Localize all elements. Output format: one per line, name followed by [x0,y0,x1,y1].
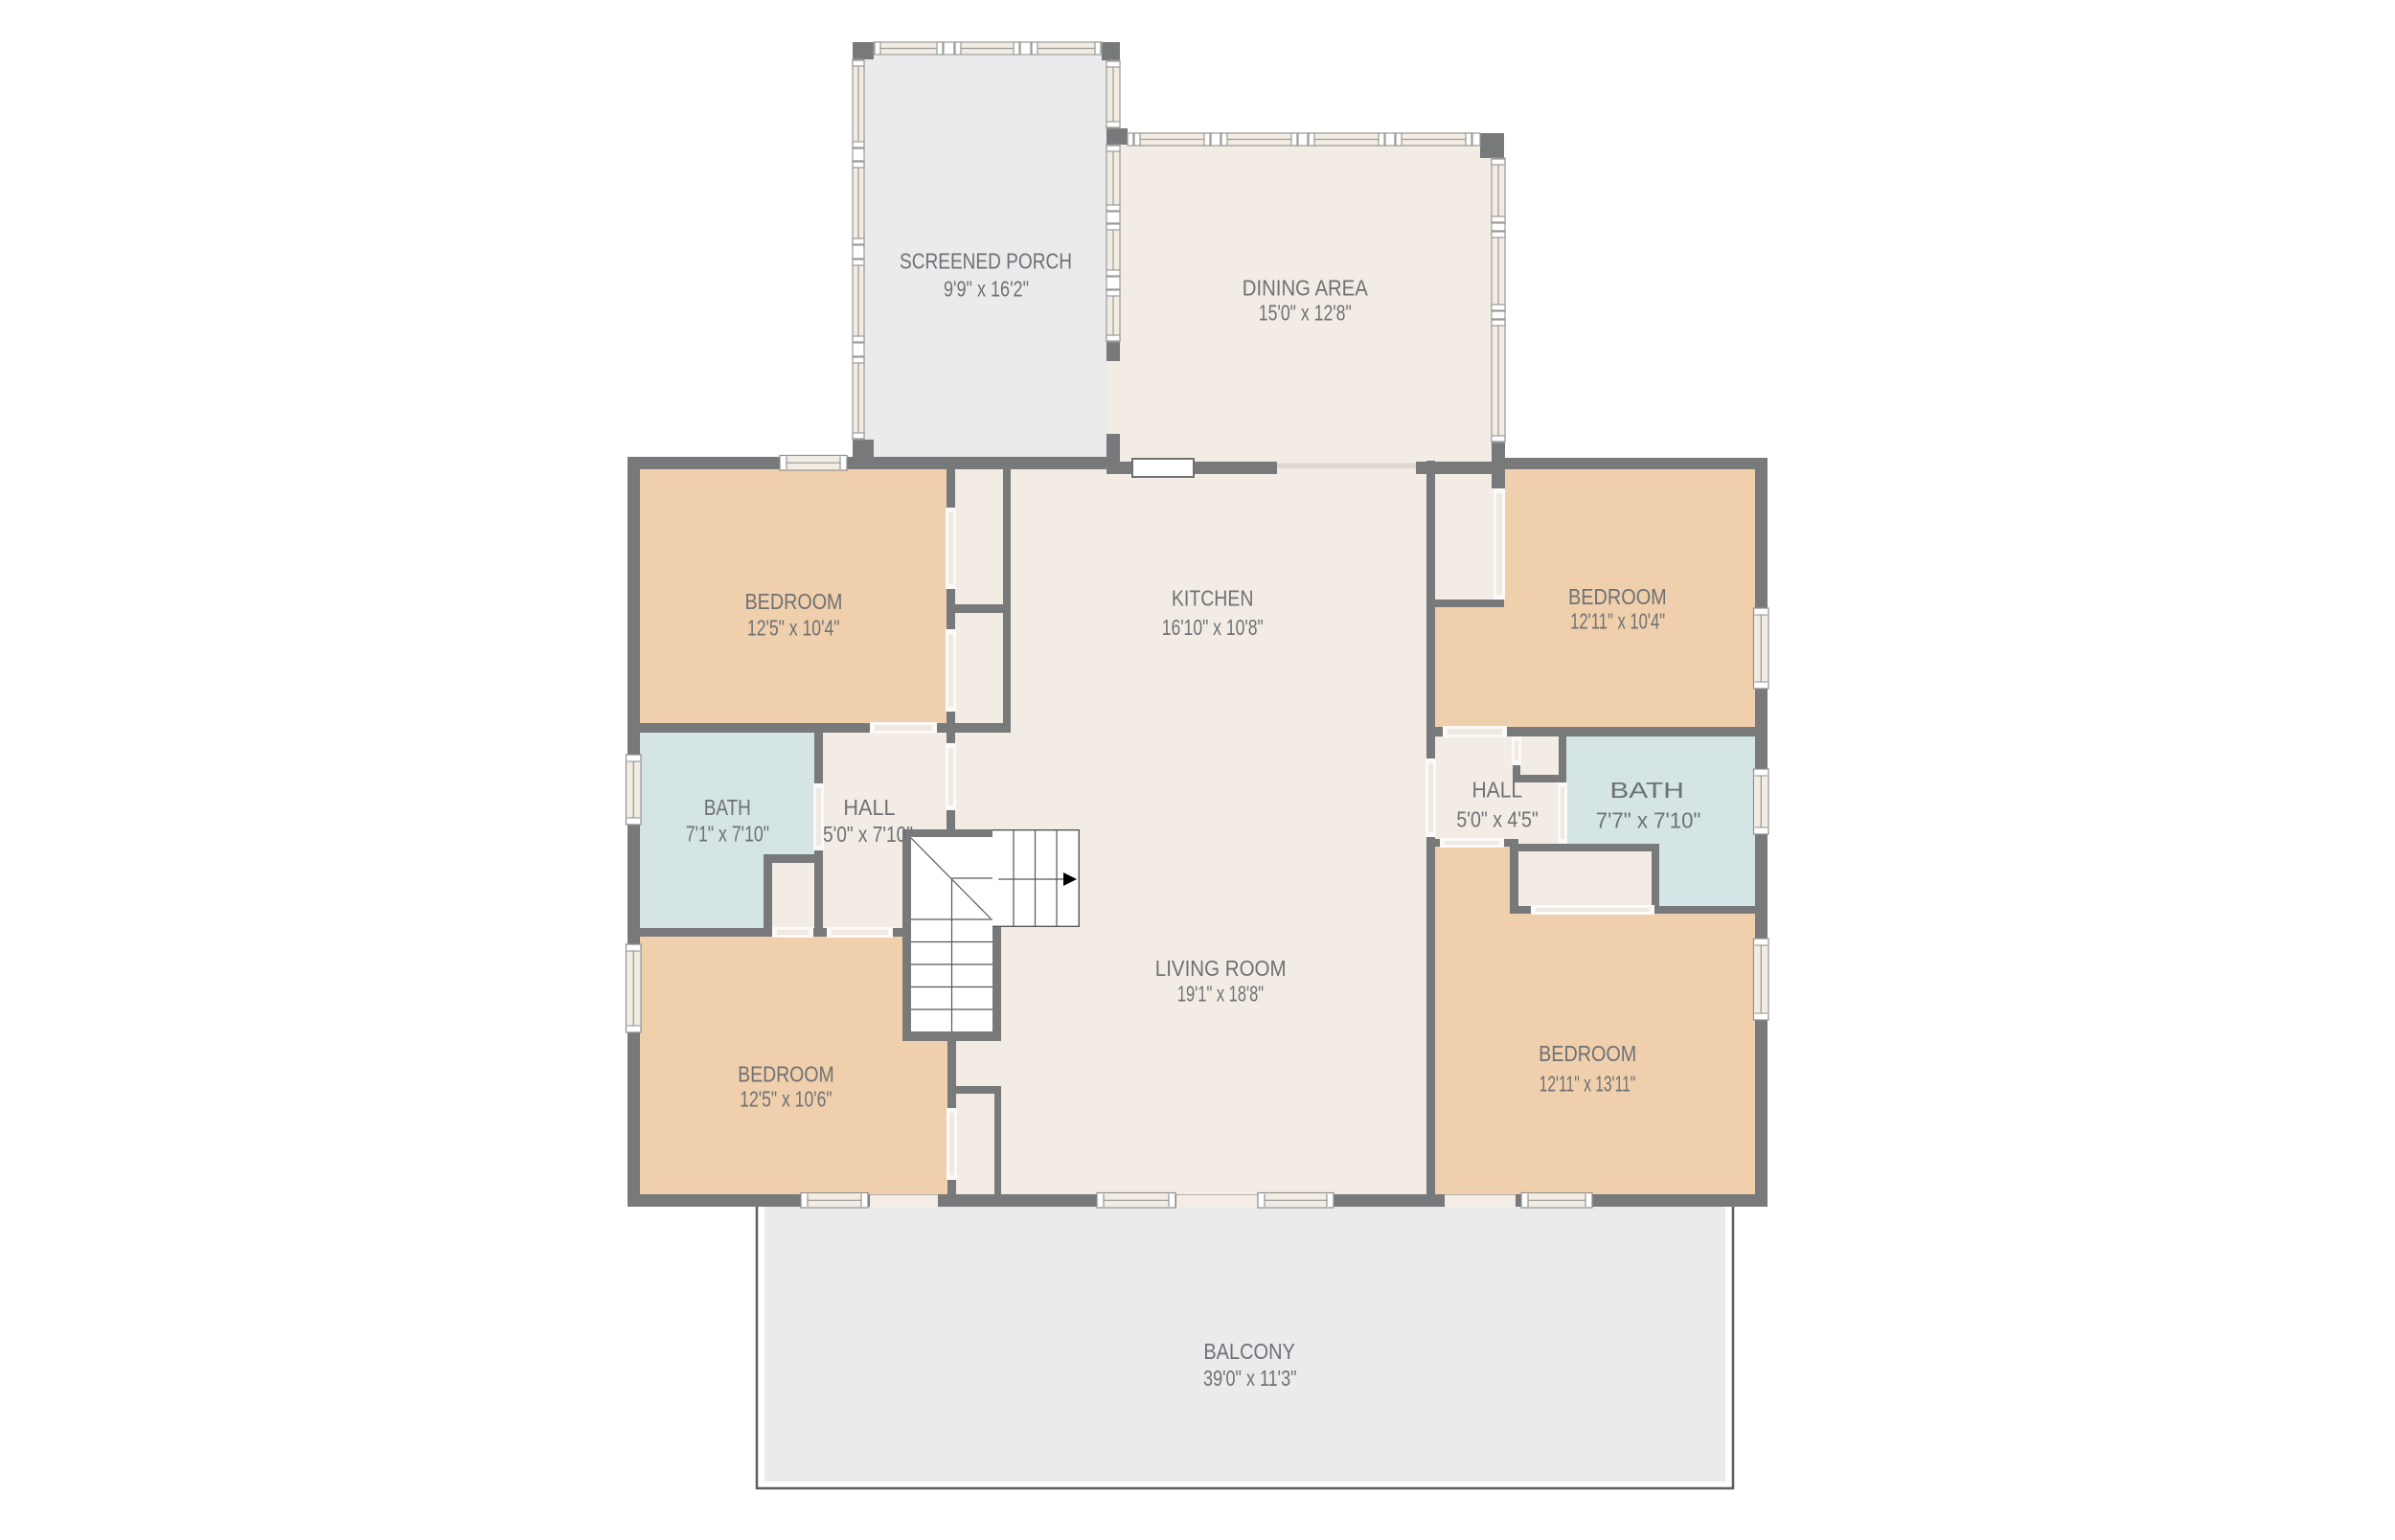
svg-text:19'1" x 18'8": 19'1" x 18'8" [1177,982,1264,1007]
svg-text:HALL: HALL [843,795,895,820]
svg-text:12'5" x 10'6": 12'5" x 10'6" [740,1087,832,1112]
svg-text:LIVING ROOM: LIVING ROOM [1155,956,1287,981]
svg-text:DINING AREA: DINING AREA [1243,275,1368,300]
svg-text:12'11" x 10'4": 12'11" x 10'4" [1570,609,1665,634]
svg-text:9'9" x 16'2": 9'9" x 16'2" [944,277,1029,302]
svg-text:39'0" x 11'3": 39'0" x 11'3" [1203,1366,1297,1391]
svg-text:BALCONY: BALCONY [1203,1339,1295,1364]
svg-text:16'10" x 10'8": 16'10" x 10'8" [1162,615,1264,640]
svg-text:BATH: BATH [1609,778,1684,803]
svg-text:SCREENED PORCH: SCREENED PORCH [900,249,1072,274]
svg-text:BATH: BATH [704,795,751,820]
svg-text:BEDROOM: BEDROOM [1568,584,1667,609]
svg-text:15'0" x 12'8": 15'0" x 12'8" [1259,300,1352,325]
svg-text:5'0" x 4'5": 5'0" x 4'5" [1456,807,1539,832]
svg-text:BEDROOM: BEDROOM [1539,1041,1636,1066]
svg-text:KITCHEN: KITCHEN [1172,586,1254,611]
svg-text:BEDROOM: BEDROOM [745,589,843,614]
svg-text:12'5" x 10'4": 12'5" x 10'4" [747,616,840,641]
svg-text:5'0" x 7'10": 5'0" x 7'10" [823,822,913,847]
svg-text:7'1" x 7'10": 7'1" x 7'10" [686,821,769,846]
svg-text:7'7" x 7'10": 7'7" x 7'10" [1596,807,1701,832]
svg-text:12'11" x 13'11": 12'11" x 13'11" [1540,1072,1636,1097]
svg-text:BEDROOM: BEDROOM [738,1061,834,1086]
svg-text:HALL: HALL [1472,777,1523,802]
